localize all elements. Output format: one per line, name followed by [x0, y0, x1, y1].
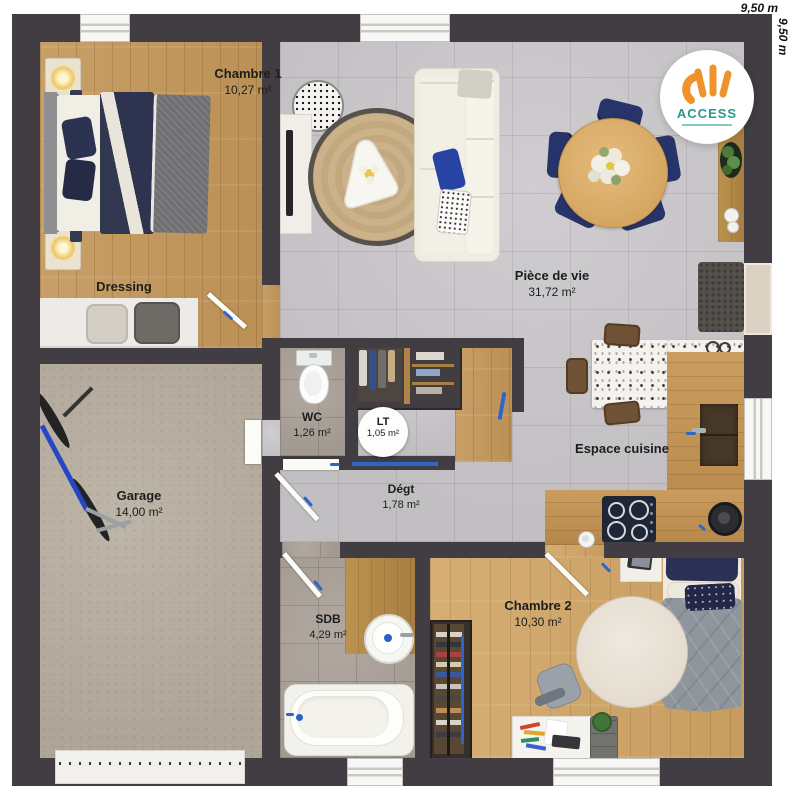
- room-area: 1,78 m²: [382, 498, 419, 512]
- room-area: 1,05 m²: [358, 428, 408, 439]
- wall-dressing-garage: [40, 348, 262, 364]
- flower-centerpiece: [580, 142, 640, 192]
- label-wc: WC 1,26 m²: [293, 410, 330, 440]
- window-bottom-sdb: [347, 758, 403, 786]
- sofa-pillow-dotted: [436, 188, 472, 235]
- burner-icon: [607, 521, 626, 540]
- plant-icon: [592, 712, 612, 732]
- bed-pillow: [684, 583, 735, 612]
- folded-clothes: [416, 387, 442, 394]
- label-chambre2: Chambre 2 10,30 m²: [504, 598, 571, 630]
- cooktop-knob: [650, 503, 653, 506]
- window-right-kitchen: [744, 398, 772, 480]
- toilet-seat: [304, 371, 322, 396]
- access-logo-badge: ACCESS: [660, 50, 754, 144]
- burner-icon: [608, 502, 625, 519]
- wall-living-wc-lt: [262, 338, 524, 348]
- room-garage-floor: [40, 364, 262, 758]
- wall-hall-stub: [512, 338, 524, 412]
- garage-door: [55, 750, 245, 784]
- label-espace-cuisine: Espace cuisine: [575, 441, 669, 458]
- plant-icon: [722, 165, 732, 175]
- kitchen-sink: [700, 404, 738, 466]
- folded-clothes: [416, 369, 440, 376]
- room-name: Chambre 2: [504, 598, 571, 615]
- bed-blanket-gray: [150, 94, 211, 233]
- coffee-table: [331, 130, 407, 212]
- bar-stool: [603, 400, 641, 426]
- room-area: 10,30 m²: [504, 615, 571, 631]
- room-name: WC: [293, 410, 330, 426]
- cooktop-knob: [650, 521, 653, 524]
- sofa-back-cushions: [466, 76, 494, 254]
- burner-icon: [631, 524, 648, 541]
- sliding-door-lt: [352, 462, 438, 466]
- window-top-chambre1: [80, 14, 130, 42]
- access-logo-tagline: [682, 124, 732, 126]
- window-bottom-chambre2: [553, 758, 660, 786]
- tv-icon: [286, 130, 293, 216]
- label-chambre1: Chambre 1 10,27 m²: [214, 66, 281, 98]
- kitchen-island: [592, 340, 668, 408]
- floor-plan: Chambre 1 10,27 m² Dressing Garage 14,00…: [0, 0, 800, 800]
- plate-icon: [727, 221, 739, 233]
- room-name: Garage: [115, 488, 162, 505]
- access-hand-icon: [677, 60, 737, 106]
- wardrobe-shelf: [412, 382, 454, 385]
- tub-faucet-icon: [296, 714, 303, 721]
- door-right-terrace: [744, 263, 772, 335]
- storage-basket: [86, 304, 128, 344]
- doorway-sdb-patch: [282, 542, 340, 558]
- nightstand-item: [70, 230, 82, 242]
- label-dressing: Dressing: [96, 279, 152, 296]
- room-name: Pièce de vie: [515, 268, 589, 285]
- wall-wc-lt: [345, 348, 358, 456]
- storage-basket: [134, 302, 180, 344]
- drain-icon: [384, 634, 392, 642]
- room-name: LT: [358, 416, 408, 428]
- room-area: 4,29 m²: [309, 628, 346, 642]
- burner-icon: [629, 500, 649, 520]
- dimension-width: 9,50 m: [700, 1, 778, 15]
- label-degt: Dégt 1,78 m²: [382, 482, 419, 512]
- dish-stack: [582, 535, 589, 542]
- room-name: SDB: [309, 612, 346, 628]
- bar-stool: [603, 323, 640, 347]
- tub-handle-icon: [286, 713, 294, 716]
- round-rug: [576, 596, 688, 708]
- garage-door-ticks: [59, 762, 241, 765]
- faucet-handle-icon: [686, 432, 696, 435]
- cooktop-knob: [650, 530, 653, 533]
- wall-sdb-chambre2: [415, 558, 430, 758]
- wall-rooms-top-b: [340, 542, 545, 558]
- cooktop-knob: [650, 512, 653, 515]
- wall-left: [12, 14, 40, 786]
- room-name: Espace cuisine: [575, 441, 669, 458]
- wardrobe-shelf: [412, 364, 454, 367]
- room-area: 1,26 m²: [293, 426, 330, 440]
- wall-rooms-top-a: [262, 542, 282, 558]
- door-handle-icon: [330, 463, 340, 466]
- cooking-pot-lid: [718, 512, 730, 524]
- room-name: Dégt: [382, 482, 419, 498]
- bed-blanket-navy: [100, 92, 154, 234]
- hanging-clothes: [369, 350, 376, 390]
- wall-garage-hall-upper: [262, 348, 280, 420]
- hanging-clothes: [388, 350, 395, 382]
- door-leaf-garage: [245, 420, 261, 464]
- room-name: Dressing: [96, 279, 152, 296]
- label-sdb: SDB 4,29 m²: [309, 612, 346, 642]
- access-logo-text: ACCESS: [660, 106, 754, 121]
- label-piece-de-vie: Pièce de vie 31,72 m²: [515, 268, 589, 300]
- room-area: 31,72 m²: [515, 285, 589, 301]
- wardrobe-blue-rail: [461, 636, 464, 744]
- window-top-living: [360, 14, 450, 42]
- wall-garage-hall-lower: [262, 464, 280, 758]
- bed-pillow: [62, 158, 97, 201]
- dark-mat: [698, 262, 744, 332]
- lamp-icon: [51, 66, 75, 90]
- flush-button: [309, 353, 317, 358]
- hanging-clothes: [378, 350, 386, 388]
- label-garage: Garage 14,00 m²: [115, 488, 162, 520]
- room-area: 14,00 m²: [115, 505, 162, 521]
- folded-clothes: [416, 352, 444, 360]
- room-name: Chambre 1: [214, 66, 281, 83]
- bathtub-basin: [297, 696, 389, 738]
- faucet-icon: [400, 633, 414, 637]
- sofa-throw-blanket: [457, 69, 493, 99]
- bar-stool: [566, 358, 588, 394]
- wardrobe-rod: [447, 624, 450, 756]
- dimension-height: 9,50 m: [776, 18, 790, 88]
- room-area: 10,27 m²: [214, 83, 281, 99]
- wardrobe-divider: [404, 346, 410, 404]
- hanging-clothes: [359, 350, 367, 386]
- label-lt-badge: LT 1,05 m²: [358, 407, 408, 457]
- wall-rooms-top-c: [604, 542, 744, 558]
